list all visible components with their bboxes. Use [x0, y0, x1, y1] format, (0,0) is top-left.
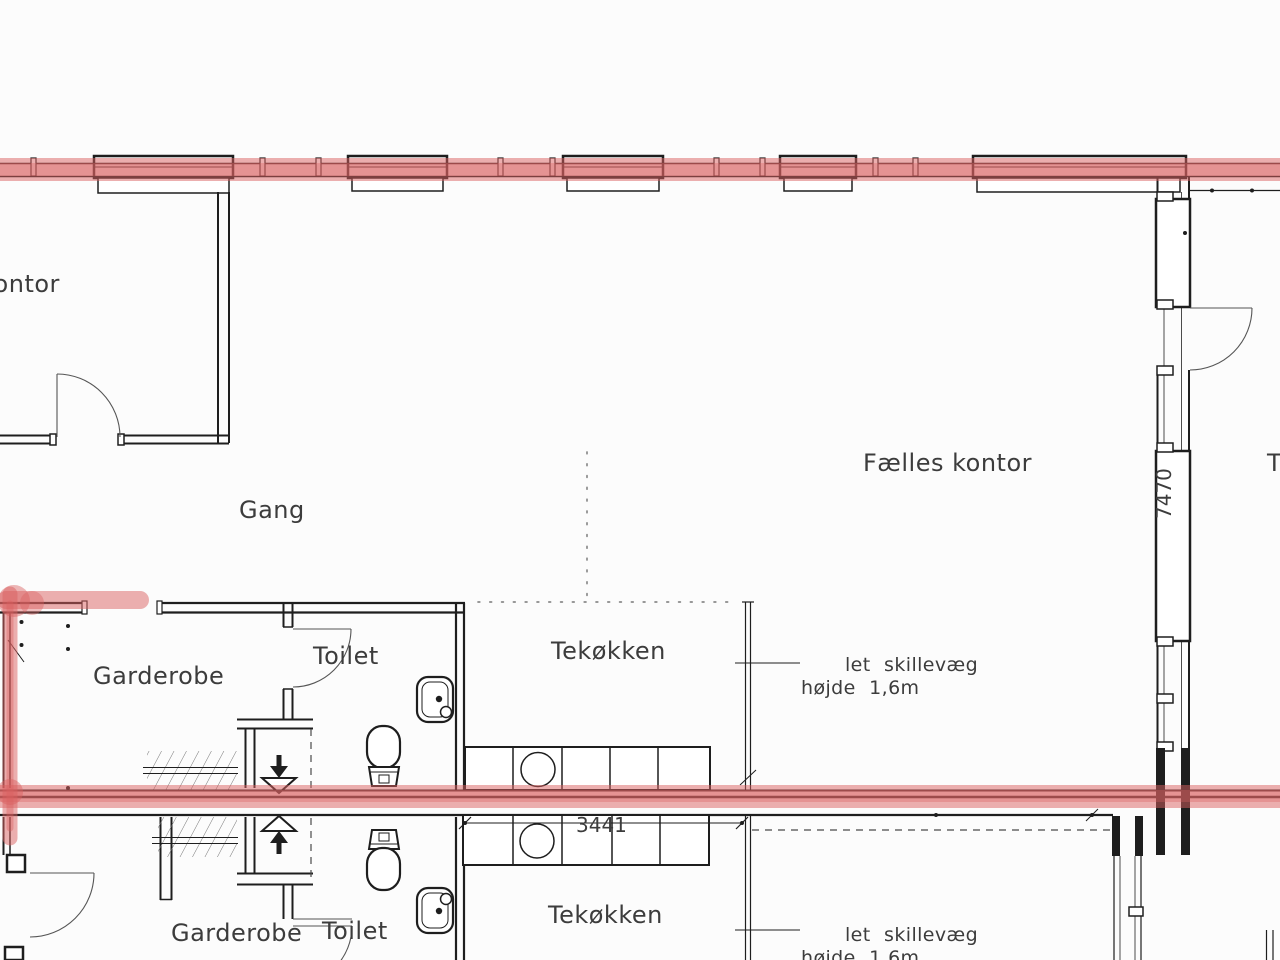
door-jamb [7, 855, 25, 872]
room-label-gang: Gang [239, 496, 305, 524]
dimension-7470: 7470 [1152, 468, 1176, 519]
annotation-partition-bottom-line1: let skillevæg [845, 924, 978, 946]
sink-fixture [417, 888, 453, 933]
window-segment [1156, 199, 1190, 307]
room-label-garderobe-bottom: Garderobe [171, 919, 302, 947]
door-arc [30, 873, 94, 937]
tekokken-top [465, 602, 800, 790]
wc-fixture [367, 726, 400, 786]
room-label-kontor: kontor [0, 270, 60, 298]
dimension-3441: 3441 [576, 813, 627, 837]
light-partition-wall [740, 602, 756, 790]
red-highlight-marker [0, 158, 1280, 838]
annotation-partition-top-line2: højde 1,6m [801, 677, 919, 699]
door-jamb [118, 434, 124, 445]
kitchen-counter [465, 747, 710, 790]
door-jamb [5, 947, 23, 960]
room-kontor-walls [0, 192, 229, 445]
dotted-guides [478, 452, 734, 602]
glazed-wall-right-bottom [1112, 816, 1143, 960]
coat-rack-hatch [147, 751, 237, 790]
room-label-tekokken-top: Tekøkken [550, 637, 666, 665]
annotation-partition-bottom-line2: højde 1,6m [801, 947, 919, 960]
room-label-toilet-top: Toilet [312, 642, 379, 670]
room-label-tekokken-bottom: Tekøkken [547, 901, 663, 929]
room-label-toilet-bottom: Toilet [321, 917, 388, 945]
door-jamb [157, 601, 162, 614]
passage-arrow-up [262, 816, 296, 854]
wc-fixture [367, 830, 400, 890]
door-arc [57, 374, 120, 437]
floor-plan-drawing: kontor Gang Fælles kontor Garderobe Toil… [0, 0, 1280, 960]
room-label-faelles-kontor: Fælles kontor [863, 449, 1032, 477]
room-label-clipped-right: T [1266, 449, 1280, 477]
door-jamb [50, 434, 56, 445]
room-label-garderobe-top: Garderobe [93, 662, 224, 690]
light-partition-wall [746, 815, 751, 960]
garderobe-toilet-top [0, 601, 465, 793]
sink-fixture [417, 677, 453, 722]
door-arc [1190, 308, 1252, 370]
annotation-partition-top-line1: let skillevæg [845, 654, 978, 676]
